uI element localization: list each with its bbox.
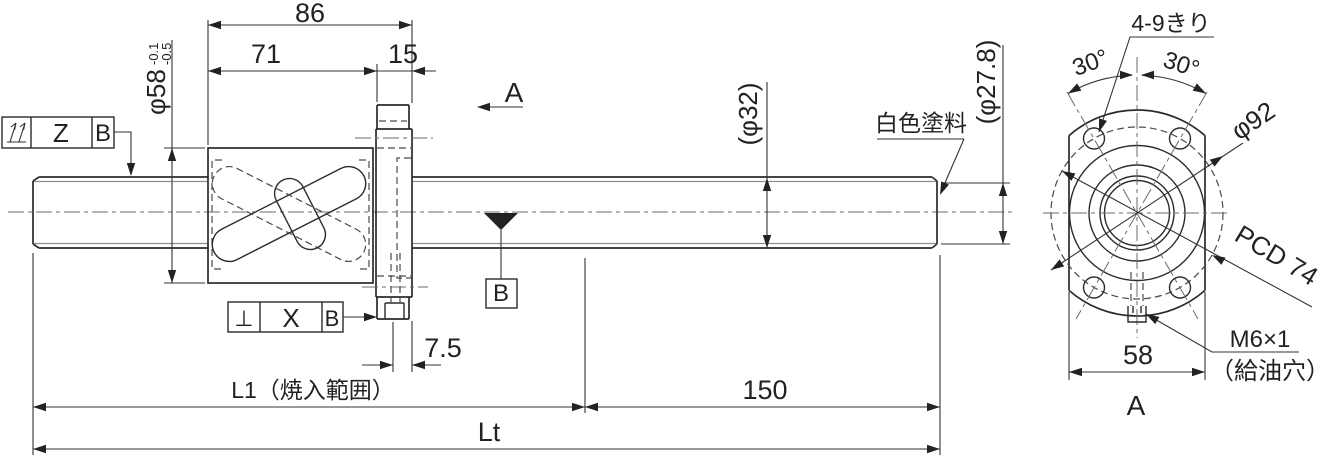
bolt-hole [1170, 128, 1191, 149]
datum-b-label: B [493, 280, 509, 307]
dim-Lt: Lt [33, 417, 940, 453]
dim-angle-left-label: 30° [1069, 44, 1112, 82]
dim-dia27-8-label: (φ27.8) [971, 40, 1001, 125]
perp-tolerance-label: X [282, 303, 299, 333]
ball-nut-body [206, 148, 373, 283]
dim-dia32-label: (φ32) [733, 82, 763, 145]
dim-L1-label: L1（焼入範囲） [231, 377, 395, 403]
fcf-perpendicularity: ⊥ X B [228, 302, 377, 333]
dim-dia58: φ58 -0.1 -0.5 [141, 40, 205, 283]
oil-hole-note-label: （給油穴） [1210, 358, 1328, 385]
technical-drawing-page: Z B ⊥ X B B A 86 71 15 [0, 0, 1328, 457]
oil-hole-thread-label: M6×1 [1230, 326, 1291, 353]
runout-tolerance-label: Z [53, 118, 69, 148]
dim-dia58-label: φ58 [141, 69, 171, 115]
dim-pcd74: PCD 74 [1060, 167, 1323, 307]
white-paint-label: 白色塗料 [875, 110, 967, 136]
drawing-canvas: Z B ⊥ X B B A 86 71 15 [0, 0, 1328, 457]
perpendicularity-icon: ⊥ [234, 306, 253, 331]
datum-b-symbol: B [484, 213, 518, 308]
runout-datum-label: B [95, 120, 111, 147]
dim-dia92-label: φ92 [1226, 95, 1281, 145]
view-direction-arrow: A [477, 77, 524, 111]
dim-86: 86 [208, 0, 412, 145]
perp-datum-label: B [325, 306, 340, 331]
flange-front-view [1043, 57, 1231, 338]
dim-58-label: 58 [1123, 340, 1153, 370]
dim-dia27-8: (φ27.8) [941, 40, 1010, 244]
white-paint-note: 白色塗料 [875, 110, 967, 197]
holes-note-label: 4-9きり [1131, 10, 1210, 36]
dim-pcd74-label: PCD 74 [1230, 219, 1323, 292]
total-runout-icon [7, 123, 26, 142]
dim-71-15: 71 15 [208, 39, 436, 102]
oil-hole-note: M6×1 （給油穴） [1144, 310, 1328, 385]
dim-dia32: (φ32) [733, 82, 771, 248]
dim-71-label: 71 [251, 39, 281, 69]
dim-Lt-label: Lt [478, 417, 501, 447]
fcf-total-runout: Z B [2, 117, 135, 176]
dim-150-label: 150 [742, 375, 787, 405]
dim-7-5: 7.5 [362, 321, 462, 372]
dim-150: 150 [585, 255, 940, 455]
bolt-hole [1084, 128, 1105, 149]
dim-86-label: 86 [295, 0, 325, 28]
dim-dia58-tol-lower: -0.5 [159, 43, 174, 65]
dim-15-label: 15 [388, 39, 418, 69]
view-a-label: A [1127, 390, 1146, 421]
view-direction-label: A [505, 77, 524, 108]
dim-7-5-label: 7.5 [424, 333, 462, 363]
